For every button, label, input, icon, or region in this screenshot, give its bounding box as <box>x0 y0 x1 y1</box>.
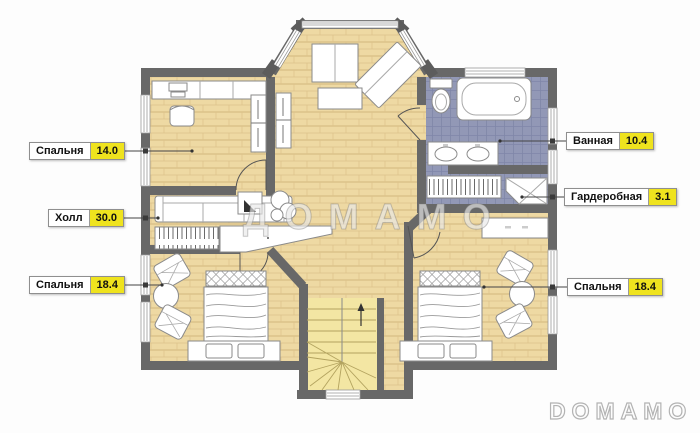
room-label-wardrobe: Гардеробная 3.1 <box>564 188 677 206</box>
wood-floor-stair-corridor <box>384 361 404 390</box>
double-bed <box>418 287 482 341</box>
double-bed <box>204 287 268 341</box>
wall-stairs-left <box>299 284 308 399</box>
bathtub <box>457 78 531 120</box>
window <box>465 68 525 77</box>
window <box>548 150 557 184</box>
window-bay-top <box>302 21 398 28</box>
watermark-corner: DOMAMO <box>549 398 692 425</box>
window <box>548 250 557 288</box>
toilet <box>430 79 452 113</box>
window <box>141 95 150 133</box>
wall-bedroom14-bottom <box>150 186 236 195</box>
room-area: 14.0 <box>91 143 124 159</box>
wall-rightbedroom-left <box>404 222 413 399</box>
wall-stair-divider <box>377 298 384 390</box>
window <box>548 296 557 334</box>
room-area: 30.0 <box>90 210 123 226</box>
wardrobe-sliding <box>251 95 266 152</box>
room-label-bedroom-left: Спальня 18.4 <box>29 276 125 294</box>
watermark-center: ДОМАМО <box>243 196 507 238</box>
room-area: 18.4 <box>629 279 662 295</box>
computer <box>169 83 187 97</box>
room-area: 10.4 <box>620 133 653 149</box>
wall-bottom-right <box>413 361 557 370</box>
wall-bathroom-wardrobe <box>448 165 548 174</box>
window <box>141 255 150 295</box>
window <box>141 148 150 186</box>
clothes-rack <box>427 176 501 198</box>
room-area: 3.1 <box>649 189 676 205</box>
wall-top-left <box>141 68 268 77</box>
room-label-bedroom-14: Спальня 14.0 <box>29 142 125 160</box>
bay-desk <box>312 44 358 82</box>
wall-bathroom-west-upper <box>417 77 426 105</box>
headboard <box>188 341 280 361</box>
window <box>326 390 360 399</box>
vanity-double-sink <box>428 142 498 165</box>
floor-plan: Спальня 14.0 Холл 30.0 Спальня 18.4 Ванн… <box>0 0 700 433</box>
bed-bench <box>420 271 480 286</box>
room-name: Спальня <box>30 143 91 159</box>
hall-table <box>318 88 362 109</box>
hall-wardrobe <box>276 93 291 148</box>
round-table <box>510 282 535 307</box>
headboard <box>400 341 492 361</box>
bed-bench <box>206 271 266 286</box>
wall-bottom-left <box>141 361 299 370</box>
room-area: 18.4 <box>91 277 124 293</box>
window <box>141 302 150 342</box>
room-name: Спальня <box>30 277 91 293</box>
room-name: Ванная <box>567 133 620 149</box>
room-name: Холл <box>49 210 90 226</box>
room-label-bathroom: Ванная 10.4 <box>566 132 654 150</box>
desk-chair <box>170 106 194 126</box>
coat-rack <box>155 227 219 249</box>
room-label-bedroom-right: Спальня 18.4 <box>567 278 663 296</box>
room-name: Спальня <box>568 279 629 295</box>
room-label-hall: Холл 30.0 <box>48 209 124 227</box>
room-name: Гардеробная <box>565 189 649 205</box>
